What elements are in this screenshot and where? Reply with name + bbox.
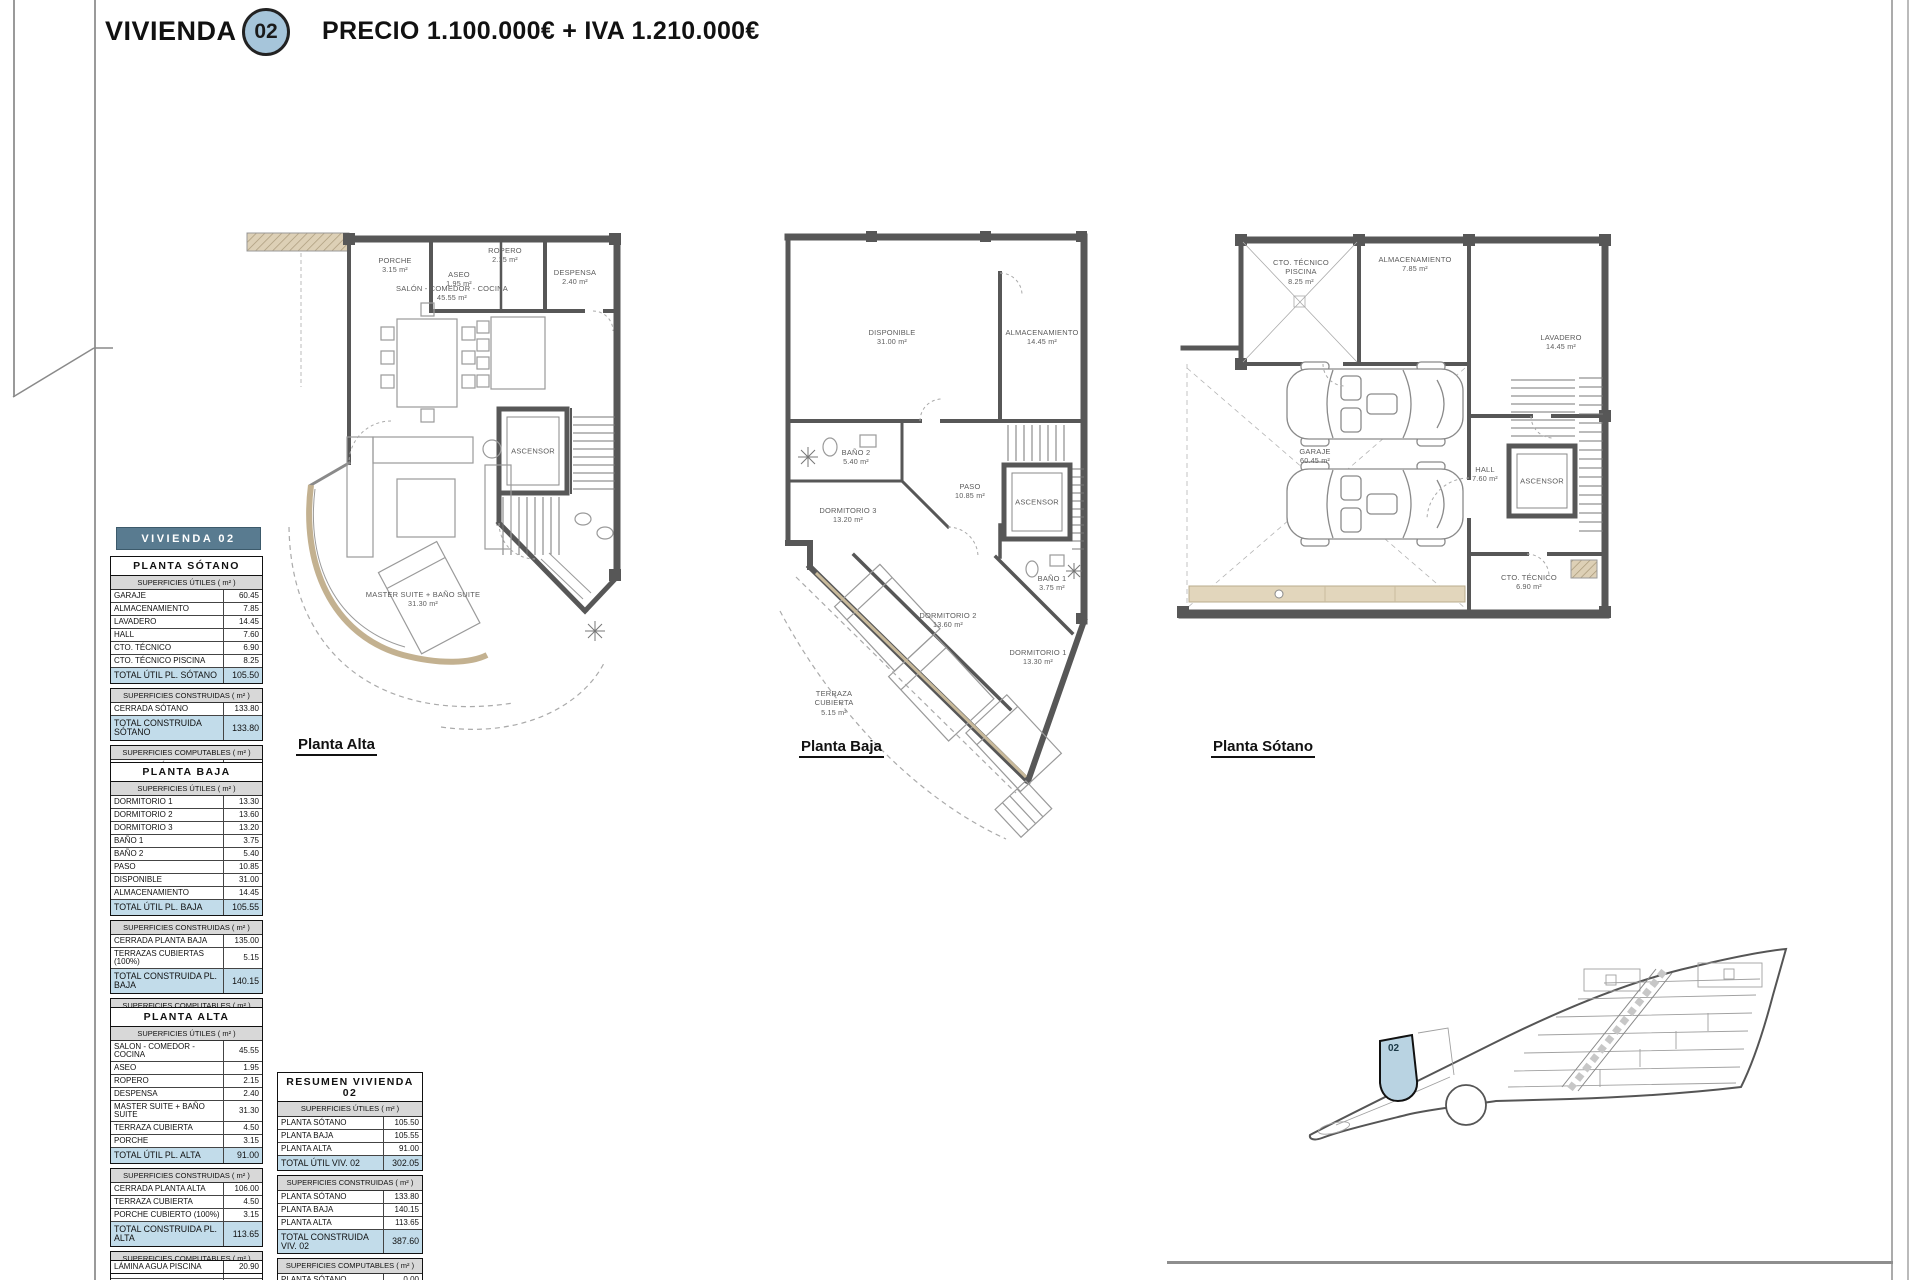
table-row: MASTER SUITE + BAÑO SUITE31.30 — [111, 1101, 262, 1122]
room-label: GARAJE60.45 m² — [1299, 447, 1330, 465]
table-row: DESPENSA2.40 — [111, 1088, 262, 1101]
table-row: PORCHE CUBIERTO (100%)3.15 — [111, 1209, 262, 1222]
row-label: PLANTA SÓTANO — [278, 1274, 383, 1280]
row-value: 31.30 — [223, 1101, 262, 1121]
row-label: CERRADA PLANTA BAJA — [111, 935, 223, 947]
table-section: SUPERFICIES CONSTRUIDAS ( m² )CERRADA PL… — [110, 1168, 263, 1247]
row-value: 133.80 — [383, 1191, 422, 1203]
room-label: TERRAZA CUBIERTA5.15 m² — [810, 689, 858, 717]
row-label: TERRAZAS CUBIERTAS (100%) — [111, 948, 223, 968]
room-label: BAÑO 13.75 m² — [1038, 574, 1067, 592]
row-value: 113.65 — [383, 1217, 422, 1229]
floorplan-planta-baja: DISPONIBLE31.00 m²ALMACENAMIENTO14.45 m²… — [770, 225, 1100, 855]
row-value: 13.30 — [223, 796, 262, 808]
table-row: TERRAZA CUBIERTA4.50 — [111, 1196, 262, 1209]
table-total-row: TOTAL ÚTIL PL. SÓTANO105.50 — [111, 668, 262, 683]
table-row: LAVADERO14.45 — [111, 616, 262, 629]
table-title: PLANTA ALTA — [111, 1008, 262, 1027]
row-label: HALL — [111, 629, 223, 641]
floorplan-planta-alta: PORCHE3.15 m²ASEO1.95 m²ROPERO2.15 m²DES… — [245, 227, 665, 767]
table-total-row: TOTAL ÚTIL PL. ALTA91.00 — [111, 1148, 262, 1163]
table-row: PLANTA BAJA105.55 — [278, 1130, 422, 1143]
table-row: BAÑO 13.75 — [111, 835, 262, 848]
row-value: 106.00 — [223, 1183, 262, 1195]
row-label: GARAJE — [111, 590, 223, 602]
table-row: CTO. TÉCNICO6.90 — [111, 642, 262, 655]
table-title: PLANTA BAJA — [111, 763, 262, 782]
area-table-resumen: RESUMEN VIVIENDA 02SUPERFICIES ÚTILES ( … — [277, 1072, 423, 1280]
table-section: SUPERFICIES CONSTRUIDAS ( m² )CERRADA SÓ… — [110, 688, 263, 741]
table-row: PLANTA ALTA91.00 — [278, 1143, 422, 1156]
table-total-row: TOTAL CONSTRUIDA PL. BAJA140.15 — [111, 969, 262, 993]
table-total-row: TOTAL ÚTIL PL. BAJA105.55 — [111, 900, 262, 915]
row-label: TOTAL ÚTIL VIV. 02 — [278, 1156, 383, 1171]
table-row: CERRADA PLANTA ALTA106.00 — [111, 1183, 262, 1196]
frame-line-right — [1891, 0, 1893, 1280]
row-label: TOTAL ÚTIL PL. ALTA — [111, 1148, 223, 1163]
room-label: CTO. TÉCNICO PISCINA8.25 m² — [1273, 258, 1329, 286]
room-label: LAVADERO14.45 m² — [1540, 333, 1581, 351]
row-label: SALON - COMEDOR - COCINA — [111, 1041, 223, 1061]
row-value: 3.15 — [223, 1209, 262, 1221]
table-row: DORMITORIO 113.30 — [111, 796, 262, 809]
row-value: 3.15 — [223, 1135, 262, 1147]
row-value: 13.20 — [223, 822, 262, 834]
row-value: 2.15 — [223, 1075, 262, 1087]
row-label: PORCHE — [111, 1135, 223, 1147]
section-header: SUPERFICIES ÚTILES ( m² ) — [278, 1102, 422, 1117]
table-row: CERRADA SÓTANO133.80 — [111, 703, 262, 716]
room-label: BAÑO 25.40 m² — [842, 448, 871, 466]
table-section: RESUMEN VIVIENDA 02SUPERFICIES ÚTILES ( … — [277, 1072, 423, 1171]
row-label: TOTAL CONSTRUIDA SÓTANO — [111, 716, 223, 740]
room-label: DORMITORIO 113.30 m² — [1009, 648, 1066, 666]
section-header: SUPERFICIES ÚTILES ( m² ) — [111, 576, 262, 591]
row-value: 31.00 — [223, 874, 262, 886]
water-sheet-value: 20.90 — [223, 1261, 262, 1273]
table-title: PLANTA SÓTANO — [111, 557, 262, 576]
table-total-row: TOTAL CONSTRUIDA SÓTANO133.80 — [111, 716, 262, 740]
site-plan: 02 — [1300, 935, 1800, 1235]
section-header: SUPERFICIES ÚTILES ( m² ) — [111, 1027, 262, 1042]
row-value: 3.75 — [223, 835, 262, 847]
section-header: SUPERFICIES ÚTILES ( m² ) — [111, 782, 262, 797]
row-value: 140.15 — [223, 969, 262, 993]
row-value: 4.50 — [223, 1196, 262, 1208]
row-label: PLANTA SÓTANO — [278, 1117, 383, 1129]
row-label: DORMITORIO 1 — [111, 796, 223, 808]
room-label: ASCENSOR — [511, 446, 555, 455]
row-value: 45.55 — [223, 1041, 262, 1061]
room-label: HALL7.60 m² — [1472, 465, 1498, 483]
row-label: ASEO — [111, 1062, 223, 1074]
row-value: 105.50 — [383, 1117, 422, 1129]
row-value: 387.60 — [383, 1230, 422, 1254]
caption-planta-baja: Planta Baja — [799, 738, 884, 758]
water-sheet-row: LÁMINA AGUA PISCINA 20.90 — [110, 1260, 263, 1274]
row-value: 4.50 — [223, 1122, 262, 1134]
row-label: ALMACENAMIENTO — [111, 603, 223, 615]
table-section: SUPERFICIES CONSTRUIDAS ( m² )PLANTA SÓT… — [277, 1175, 423, 1254]
room-label: ALMACENAMIENTO7.85 m² — [1378, 255, 1451, 273]
row-value: 10.85 — [223, 861, 262, 873]
row-label: DORMITORIO 3 — [111, 822, 223, 834]
floorplan-planta-sotano: CTO. TÉCNICO PISCINA8.25 m²ALMACENAMIENT… — [1175, 228, 1615, 718]
row-label: TOTAL ÚTIL PL. BAJA — [111, 900, 223, 915]
room-label: PORCHE3.15 m² — [378, 256, 411, 274]
site-plan-drawing — [1300, 935, 1800, 1235]
row-label: TOTAL CONSTRUIDA VIV. 02 — [278, 1230, 383, 1254]
room-label: DESPENSA2.40 m² — [554, 268, 596, 286]
table-row: CERRADA PLANTA BAJA135.00 — [111, 935, 262, 948]
row-label: DESPENSA — [111, 1088, 223, 1100]
section-header: SUPERFICIES CONSTRUIDAS ( m² ) — [111, 1169, 262, 1184]
row-label: LAVADERO — [111, 616, 223, 628]
row-label: ROPERO — [111, 1075, 223, 1087]
section-header: SUPERFICIES COMPUTABLES ( m² ) — [278, 1259, 422, 1274]
page-title: VIVIENDA — [105, 16, 237, 47]
row-label: PASO — [111, 861, 223, 873]
room-label: ASCENSOR — [1520, 476, 1564, 485]
table-row: CTO. TÉCNICO PISCINA8.25 — [111, 655, 262, 668]
table-row: DISPONIBLE31.00 — [111, 874, 262, 887]
room-label: DORMITORIO 313.20 m² — [819, 506, 876, 524]
section-header: SUPERFICIES CONSTRUIDAS ( m² ) — [111, 689, 262, 704]
row-label: BAÑO 2 — [111, 848, 223, 860]
table-total-row: TOTAL CONSTRUIDA PL. ALTA113.65 — [111, 1222, 262, 1246]
caption-planta-sotano: Planta Sótano — [1211, 738, 1315, 758]
table-row: SALON - COMEDOR - COCINA45.55 — [111, 1041, 262, 1062]
table-row: DORMITORIO 313.20 — [111, 822, 262, 835]
room-label: PASO10.85 m² — [955, 482, 985, 500]
table-row: PORCHE3.15 — [111, 1135, 262, 1148]
table-section: PLANTA SÓTANOSUPERFICIES ÚTILES ( m² )GA… — [110, 556, 263, 684]
row-value: 2.40 — [223, 1088, 262, 1100]
room-label: DORMITORIO 213.60 m² — [919, 611, 976, 629]
row-label: TERRAZA CUBIERTA — [111, 1122, 223, 1134]
row-label: DISPONIBLE — [111, 874, 223, 886]
row-label: TOTAL CONSTRUIDA PL. BAJA — [111, 969, 223, 993]
row-value: 105.55 — [383, 1130, 422, 1142]
row-label: PLANTA SÓTANO — [278, 1191, 383, 1203]
table-row: ALMACENAMIENTO14.45 — [111, 887, 262, 900]
row-label: PLANTA ALTA — [278, 1143, 383, 1155]
room-label: ROPERO2.15 m² — [488, 246, 522, 264]
row-label: MASTER SUITE + BAÑO SUITE — [111, 1101, 223, 1121]
table-row: PLANTA SÓTANO105.50 — [278, 1117, 422, 1130]
room-label: CTO. TÉCNICO6.90 m² — [1501, 573, 1557, 591]
room-label: SALÓN - COMEDOR - COCINA45.55 m² — [396, 284, 508, 302]
table-row: HALL7.60 — [111, 629, 262, 642]
table-row: PLANTA SÓTANO133.80 — [278, 1191, 422, 1204]
row-value: 105.55 — [223, 900, 262, 915]
section-header: SUPERFICIES COMPUTABLES ( m² ) — [111, 746, 262, 761]
floorplan-baja-drawing — [770, 225, 1100, 855]
row-value: 13.60 — [223, 809, 262, 821]
table-total-row: TOTAL CONSTRUIDA VIV. 02387.60 — [278, 1230, 422, 1254]
room-label: MASTER SUITE + BAÑO SUITE31.30 m² — [366, 590, 480, 608]
table-row: TERRAZA CUBIERTA4.50 — [111, 1122, 262, 1135]
plan-sheet: VIVIENDA 02 PRECIO 1.100.000€ + IVA 1.21… — [0, 0, 1920, 1280]
table-row: PLANTA ALTA113.65 — [278, 1217, 422, 1230]
row-value: 0.00 — [383, 1274, 422, 1280]
section-header: SUPERFICIES CONSTRUIDAS ( m² ) — [278, 1176, 422, 1191]
row-value: 135.00 — [223, 935, 262, 947]
row-label: TERRAZA CUBIERTA — [111, 1196, 223, 1208]
table-section: SUPERFICIES CONSTRUIDAS ( m² )CERRADA PL… — [110, 920, 263, 994]
table-section: PLANTA ALTASUPERFICIES ÚTILES ( m² )SALO… — [110, 1007, 263, 1164]
site-unit-label: 02 — [1388, 1043, 1399, 1054]
caption-planta-alta: Planta Alta — [296, 736, 377, 756]
area-table-alta: PLANTA ALTASUPERFICIES ÚTILES ( m² )SALO… — [110, 1007, 263, 1280]
room-label: ALMACENAMIENTO14.45 m² — [1005, 328, 1078, 346]
frame-line-right-edge — [1907, 0, 1909, 1280]
row-value: 5.15 — [223, 948, 262, 968]
row-label: CERRADA PLANTA ALTA — [111, 1183, 223, 1195]
table-row: ROPERO2.15 — [111, 1075, 262, 1088]
table-section: PLANTA BAJASUPERFICIES ÚTILES ( m² )DORM… — [110, 762, 263, 916]
frame-corner-lines — [0, 0, 200, 420]
table-total-row: TOTAL ÚTIL VIV. 02302.05 — [278, 1156, 422, 1171]
room-label: ASCENSOR — [1015, 497, 1059, 506]
sheet-band-title: VIVIENDA 02 — [116, 527, 261, 550]
row-value: 302.05 — [383, 1156, 422, 1171]
section-header: SUPERFICIES CONSTRUIDAS ( m² ) — [111, 921, 262, 936]
row-value: 91.00 — [223, 1148, 262, 1163]
row-label: PORCHE CUBIERTO (100%) — [111, 1209, 223, 1221]
table-row: PLANTA BAJA140.15 — [278, 1204, 422, 1217]
row-label: CTO. TÉCNICO — [111, 642, 223, 654]
floorplan-alta-drawing — [245, 227, 665, 767]
table-row: DORMITORIO 213.60 — [111, 809, 262, 822]
row-label: ALMACENAMIENTO — [111, 887, 223, 899]
row-value: 113.65 — [223, 1222, 262, 1246]
table-row: GARAJE60.45 — [111, 590, 262, 603]
table-row: PASO10.85 — [111, 861, 262, 874]
row-label: PLANTA BAJA — [278, 1130, 383, 1142]
table-section: SUPERFICIES COMPUTABLES ( m² )PLANTA SÓT… — [277, 1258, 423, 1280]
row-value: 91.00 — [383, 1143, 422, 1155]
row-label: CTO. TÉCNICO PISCINA — [111, 655, 223, 667]
row-label: BAÑO 1 — [111, 835, 223, 847]
table-row: ASEO1.95 — [111, 1062, 262, 1075]
row-label: DORMITORIO 2 — [111, 809, 223, 821]
price-text: PRECIO 1.100.000€ + IVA 1.210.000€ — [322, 17, 760, 46]
room-label: DISPONIBLE31.00 m² — [868, 328, 915, 346]
row-label: TOTAL ÚTIL PL. SÓTANO — [111, 668, 223, 683]
unit-number-badge: 02 — [242, 8, 290, 56]
row-value: 5.40 — [223, 848, 262, 860]
table-row: TERRAZAS CUBIERTAS (100%)5.15 — [111, 948, 262, 969]
row-label: PLANTA BAJA — [278, 1204, 383, 1216]
table-row: ALMACENAMIENTO7.85 — [111, 603, 262, 616]
row-label: PLANTA ALTA — [278, 1217, 383, 1229]
row-value: 140.15 — [383, 1204, 422, 1216]
table-title: RESUMEN VIVIENDA 02 — [278, 1073, 422, 1102]
table-row: BAÑO 25.40 — [111, 848, 262, 861]
row-label: CERRADA SÓTANO — [111, 703, 223, 715]
frame-line-bottom — [1167, 1261, 1893, 1264]
row-value: 14.45 — [223, 887, 262, 899]
floorplan-sotano-drawing — [1175, 228, 1615, 718]
row-value: 1.95 — [223, 1062, 262, 1074]
table-row: PLANTA SÓTANO0.00 — [278, 1274, 422, 1280]
row-label: TOTAL CONSTRUIDA PL. ALTA — [111, 1222, 223, 1246]
water-sheet-label: LÁMINA AGUA PISCINA — [111, 1261, 223, 1273]
